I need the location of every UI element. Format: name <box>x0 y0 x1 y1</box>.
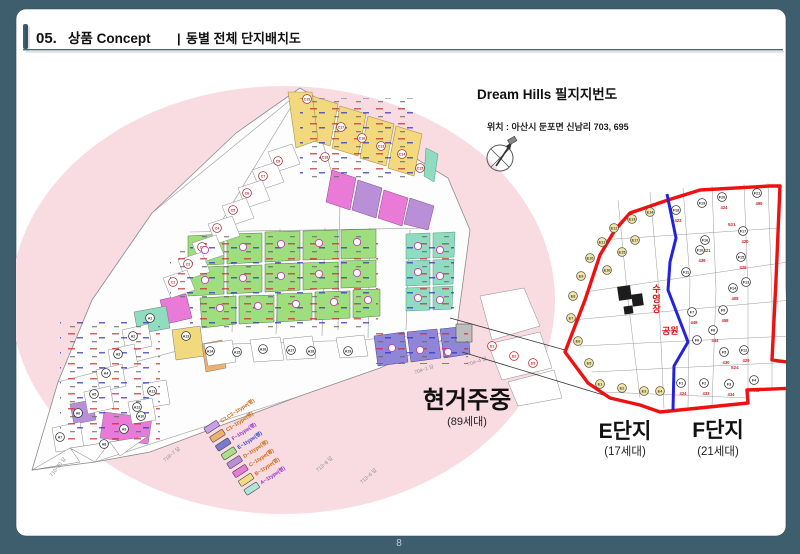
parcel-marker-label: A19 <box>345 350 352 354</box>
parcel-marker-label: C7 <box>261 175 266 179</box>
parcel-marker-label: C18 <box>322 156 329 160</box>
park-label: 공원 <box>662 325 679 336</box>
header-separator: | <box>177 31 181 46</box>
parcel-marker-label: C15 <box>417 167 424 171</box>
parcel-marker-label: C14 <box>399 153 406 157</box>
f-parcel-number: 420 <box>742 239 750 244</box>
b-parcel-dot <box>436 296 443 303</box>
complex-f-count: (21세대) <box>697 445 739 458</box>
f-parcel-number: 449 <box>691 320 699 325</box>
b-parcel-dot <box>239 274 246 281</box>
b-parcel-dot <box>292 300 299 307</box>
e-parcel-label: E17 <box>632 239 639 243</box>
f-parcel-label: F20 <box>719 196 726 200</box>
f-parcel-label: F14 <box>730 287 737 291</box>
parcel-marker-label: C19 <box>304 98 311 102</box>
b-parcel-dot <box>444 348 451 355</box>
complex-e-label: E단지 <box>599 420 652 443</box>
b-parcel-dot <box>277 240 284 247</box>
parcel-marker-label: A14 <box>207 350 214 354</box>
e-parcel-label: E11 <box>599 241 606 245</box>
e-parcel-label: E14 <box>647 211 655 215</box>
b-parcel-dot <box>364 296 371 303</box>
parcel-marker-label: C4 <box>215 227 220 231</box>
header-accent-shadow <box>25 26 30 51</box>
f-parcel-number: 424 <box>721 205 729 210</box>
e-parcel-label: E3 <box>642 390 647 394</box>
parcel-marker-label: C8 <box>276 160 281 164</box>
f-parcel-number: 408 <box>732 296 740 301</box>
parcel-marker-label: A2 <box>131 335 136 339</box>
f-parcel-number: 429 <box>743 358 751 363</box>
f-parcel-number: 421 <box>704 248 712 253</box>
f-parcel-label: F6 <box>695 339 699 343</box>
parcel-marker-label: D2 <box>512 355 517 359</box>
parcel-marker-label: D1 <box>490 345 495 349</box>
b-parcel-dot <box>216 304 223 311</box>
parcel-marker-label: A17 <box>288 349 295 353</box>
header-subtitle: 동별 전체 단지배치도 <box>186 31 301 46</box>
f-parcel-label: F11 <box>683 271 689 275</box>
parcel-marker-label: A11 <box>149 390 155 394</box>
b-parcel-dot <box>254 302 261 309</box>
b-parcel-dot <box>436 272 443 279</box>
slide: C19C17C16C13C14C18C15C8C7C6C5C4C3C2C1A1A… <box>0 0 800 554</box>
b-parcel-dot <box>414 268 421 275</box>
parcel-marker-label: A4 <box>104 372 109 376</box>
status-count: (89세대) <box>447 415 487 428</box>
parcel-marker-label: A12 <box>134 406 141 410</box>
parcel-marker-label: A8 <box>102 443 107 447</box>
f-parcel-label: F2 <box>702 382 706 386</box>
b-parcel-dot <box>353 269 360 276</box>
location-line: 위치 : 아산시 둔포면 신남리 703, 695 <box>487 121 629 132</box>
e-parcel-label: E7 <box>569 317 574 321</box>
parcel-marker-label: D3 <box>531 362 536 366</box>
complex-e-count: (17세대) <box>604 445 646 458</box>
f-parcel-number: 423 <box>675 218 683 223</box>
header-number: 05. <box>36 30 57 47</box>
complex-f-label: F단지 <box>692 419 743 442</box>
b-parcel-dot <box>414 294 421 301</box>
parcel-marker-label: C2 <box>186 263 191 267</box>
slide-canvas: C19C17C16C13C14C18C15C8C7C6C5C4C3C2C1A1A… <box>0 0 800 554</box>
f-parcel-number: 429 <box>740 265 748 270</box>
b-parcel-dot <box>315 270 322 277</box>
parcel-marker-label: A1 <box>148 317 153 321</box>
right-road-label: 521 <box>728 222 736 227</box>
parcel-marker-label: A9 <box>122 428 127 432</box>
f-parcel-label: F1 <box>679 382 683 386</box>
b-parcel-dot <box>201 246 208 253</box>
f-parcel-label: F19 <box>699 202 706 206</box>
b-parcel-dot <box>277 272 284 279</box>
parcel-marker-label: C16 <box>359 137 366 141</box>
b-parcel-dot <box>315 239 322 246</box>
f-parcel-number: 434 <box>728 392 736 397</box>
e-parcel-label: E5 <box>587 362 592 366</box>
f-parcel-label: F8 <box>711 329 715 333</box>
parcel-marker-label: C6 <box>245 192 250 196</box>
e-parcel-label: E16 <box>604 269 611 273</box>
parcel-marker-label: A18 <box>308 350 315 354</box>
parcel-marker-label: C5 <box>231 209 236 213</box>
f-parcel-label: F16 <box>702 239 709 243</box>
f-parcel-label: F9 <box>721 309 725 313</box>
f-parcel-number: 439 <box>699 258 707 263</box>
b-parcel-dot <box>239 243 246 250</box>
f-parcel-number: 499 <box>756 201 764 206</box>
parcel-marker-label: C13 <box>378 145 385 149</box>
f-parcel-label: F18 <box>673 209 680 213</box>
b-parcel-dot <box>414 242 421 249</box>
parcel-marker-label: A5 <box>92 393 97 397</box>
e-parcel-label: E2 <box>620 387 625 391</box>
parcel-marker-label: A10 <box>138 415 145 419</box>
f-parcel-number: 433 <box>703 391 711 396</box>
e-parcel-label: E12 <box>611 227 618 231</box>
b-parcel-dot <box>388 344 395 351</box>
f-parcel-label: F13 <box>743 281 750 285</box>
status-label: 현거주중 <box>423 387 511 414</box>
e-parcel-label: E10 <box>587 257 594 261</box>
b-parcel-dot <box>436 246 443 253</box>
e-parcel-label: E8 <box>571 295 576 299</box>
f-parcel-number: 448 <box>753 388 761 393</box>
b-parcel-dot <box>330 298 337 305</box>
e-parcel-label: E6 <box>576 340 581 344</box>
header-title: 상품 Concept <box>68 31 151 46</box>
right-road-label: 524 <box>731 365 739 370</box>
parcel-marker-label: A13 <box>183 335 190 339</box>
pool-label: 수영장 <box>651 284 661 314</box>
f-parcel-label: F15 <box>738 256 745 260</box>
b-parcel-dot <box>201 276 208 283</box>
f-parcel-label: F5 <box>722 351 726 355</box>
b-parcel-dot <box>353 238 360 245</box>
parcel-marker-label: A15 <box>234 351 241 355</box>
b-parcel-dot <box>416 346 423 353</box>
f-parcel-number: 430 <box>723 360 731 365</box>
parcel-marker-label: A3 <box>116 353 121 357</box>
f-parcel-label: F7 <box>690 311 694 315</box>
page-number: 8 <box>396 538 402 549</box>
f-parcel-number: 444 <box>712 338 720 343</box>
parcel-marker-label: C17 <box>338 126 345 130</box>
parcel-marker-label: A7 <box>58 436 63 440</box>
header-rule <box>23 49 783 50</box>
f-parcel-number: 424 <box>680 391 688 396</box>
parcel-marker-label: A6 <box>76 412 81 416</box>
f-parcel-label: F17 <box>740 230 747 234</box>
f-parcel-label: F12 <box>741 349 748 353</box>
parcel-marker-label: A16 <box>260 348 267 352</box>
e-parcel-label: E13 <box>629 218 636 222</box>
parcel-marker-label: C1 <box>171 281 176 285</box>
e-parcel-label: E15 <box>619 251 626 255</box>
f-parcel-label: F21 <box>754 192 761 196</box>
e-parcel-label: E1 <box>598 383 603 387</box>
f-parcel-number: 458 <box>722 318 730 323</box>
f-parcel-label: F10 <box>697 249 704 253</box>
map-title: Dream Hills 필지지번도 <box>477 86 618 102</box>
e-parcel-label: E9 <box>579 275 584 279</box>
f-parcel-label: F3 <box>727 383 731 387</box>
header-rule-shadow <box>26 51 784 53</box>
